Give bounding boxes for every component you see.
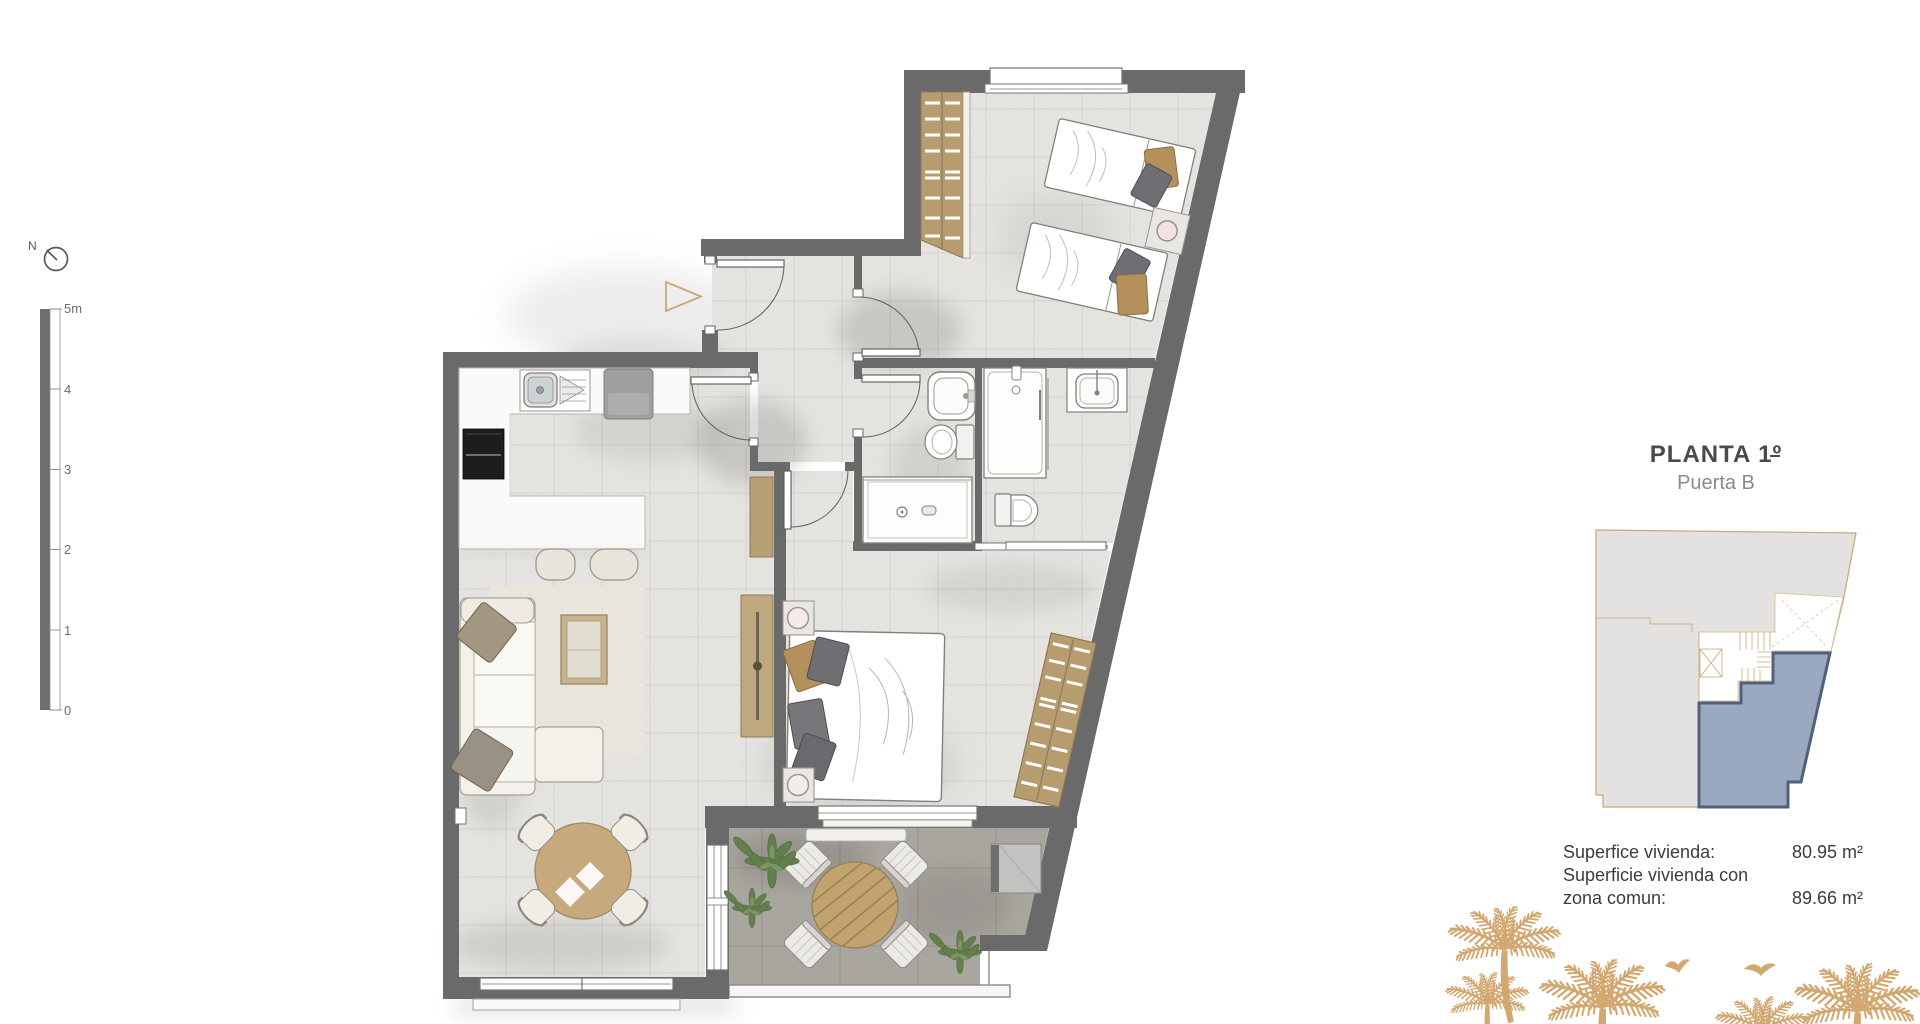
- svg-text:1: 1: [64, 623, 71, 638]
- svg-text:89.66 m²: 89.66 m²: [1792, 888, 1863, 908]
- svg-text:N: N: [28, 239, 37, 253]
- svg-text:PLANTA 1º: PLANTA 1º: [1650, 441, 1782, 468]
- svg-text:5m: 5m: [64, 301, 82, 316]
- svg-text:2: 2: [64, 542, 71, 557]
- svg-text:80.95 m²: 80.95 m²: [1792, 842, 1863, 862]
- svg-text:Puerta B: Puerta B: [1677, 472, 1755, 494]
- svg-text:Superficie vivienda con: Superficie vivienda con: [1563, 865, 1748, 885]
- svg-text:4: 4: [64, 382, 71, 397]
- svg-text:3: 3: [64, 462, 71, 477]
- svg-text:0: 0: [64, 703, 71, 718]
- svg-text:zona comun:: zona comun:: [1563, 888, 1666, 908]
- svg-text:Superfice vivienda:: Superfice vivienda:: [1563, 842, 1715, 862]
